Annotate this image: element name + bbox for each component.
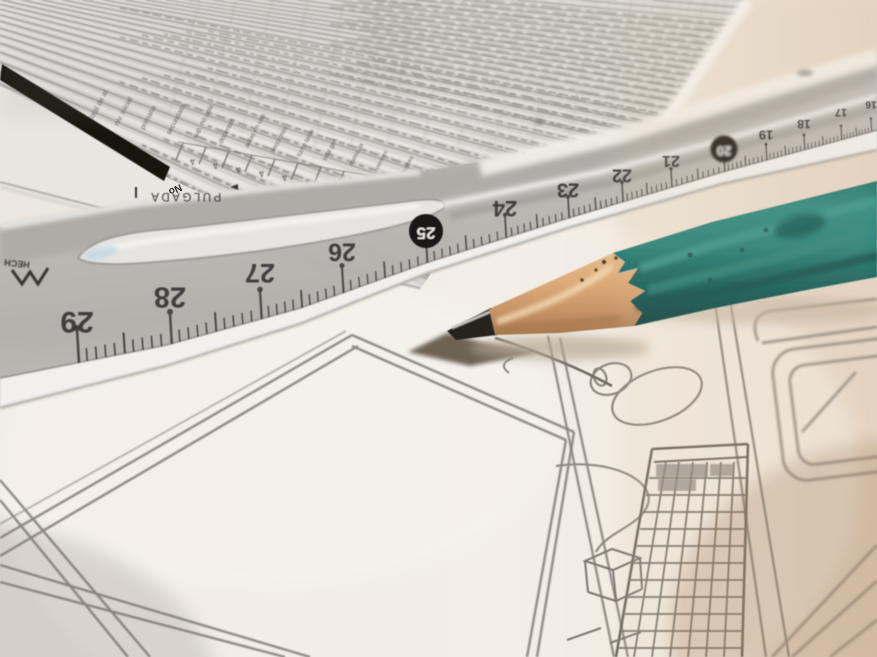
svg-text:PULGADA: PULGADA: [149, 190, 221, 202]
svg-text:29: 29: [60, 305, 93, 338]
svg-text:23: 23: [557, 179, 579, 201]
svg-text:27: 27: [245, 258, 275, 288]
svg-text:24: 24: [492, 196, 517, 221]
svg-text:26: 26: [328, 237, 356, 265]
svg-text:25: 25: [417, 224, 436, 243]
svg-text:28: 28: [154, 280, 186, 312]
